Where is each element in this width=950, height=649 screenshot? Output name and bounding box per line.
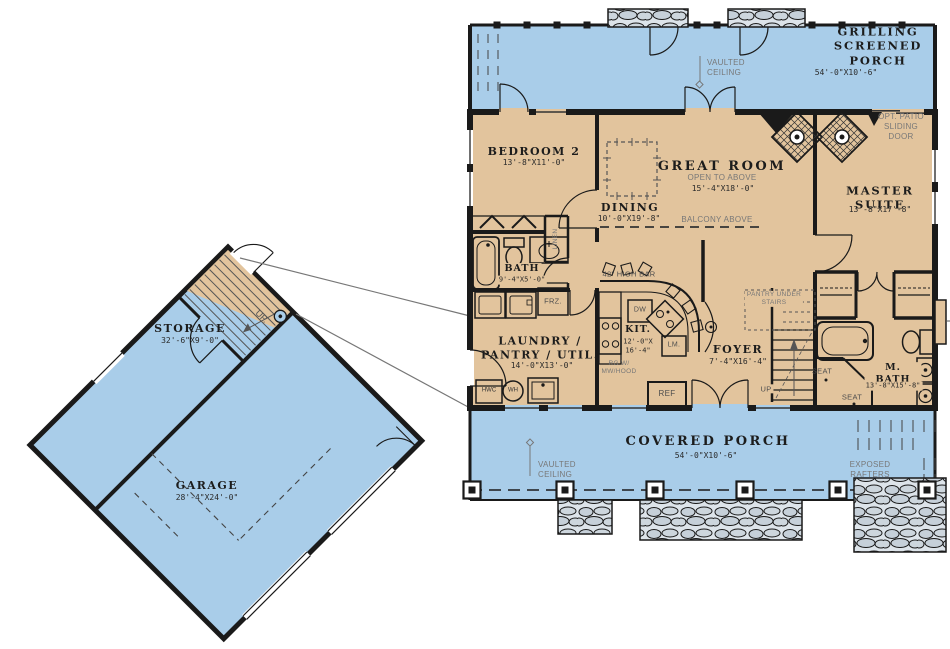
room-label-dining: DINING bbox=[601, 201, 659, 215]
dishwasher-label: DW bbox=[634, 307, 646, 316]
room-dims-dining: 10'-0"X19'-8" bbox=[598, 214, 661, 224]
room-dims-master-suite: 13'-8"X17'-8" bbox=[849, 205, 912, 215]
high-bar-note: 42" HIGH BAR bbox=[603, 269, 656, 278]
room-label-grilling-screened-porch: GRILLING SCREENED PORCH bbox=[834, 24, 922, 67]
linen-closet-label: LINEN bbox=[552, 229, 560, 250]
vaulted-ceiling-note-top: VAULTED CEILING bbox=[707, 58, 745, 78]
vaulted-ceiling-note-bottom: VAULTED CEILING bbox=[538, 460, 576, 480]
room-label-covered-porch: COVERED PORCH bbox=[626, 434, 791, 450]
room-dims-master-bath: 13'-8"X15'-8" bbox=[864, 382, 923, 391]
room-dims-bedroom2: 13'-8"X11'-0" bbox=[503, 158, 566, 168]
exposed-rafters-note: EXPOSED RAFTERS bbox=[830, 460, 910, 480]
room-label-bath: BATH bbox=[503, 263, 542, 275]
range-hood-note: RG W/ MW/HOOD bbox=[602, 360, 637, 376]
room-label-foyer: FOYER bbox=[713, 343, 763, 357]
up-label-foyer: UP bbox=[758, 384, 773, 393]
labels-layer: GRILLING SCREENED PORCH 54'-0"X10'-6" BE… bbox=[0, 0, 950, 649]
room-dims-grilling-screened-porch: 54'-0"X10'-6" bbox=[815, 68, 878, 78]
room-label-garage: GARAGE bbox=[176, 479, 238, 493]
lm-label: LM. bbox=[668, 342, 681, 351]
room-label-storage: STORAGE bbox=[154, 322, 226, 336]
seat-label-1: SEAT bbox=[812, 366, 832, 375]
refrigerator-label: REF bbox=[659, 389, 676, 399]
freezer-label: FRZ. bbox=[544, 296, 562, 305]
hwc-label: HWC bbox=[482, 387, 496, 395]
room-dims-storage: 32'-6"X9'-0" bbox=[161, 336, 219, 346]
pantry-under-stairs-note: PANTRY UNDER STAIRS bbox=[745, 291, 803, 307]
room-note-great-room: OPEN TO ABOVE bbox=[688, 173, 757, 183]
room-label-kitchen: KIT. bbox=[625, 324, 651, 336]
balcony-above-note: BALCONY ABOVE bbox=[681, 215, 752, 225]
room-dims-great-room: 15'-4"X18'-0" bbox=[692, 184, 755, 194]
room-dims-kitchen: 12'-0"X 16'-4" bbox=[623, 337, 653, 355]
room-dims-bath: 9'-4"X5'-0" bbox=[497, 276, 547, 285]
room-label-bedroom2: BEDROOM 2 bbox=[488, 145, 581, 159]
room-dims-covered-porch: 54'-0"X10'-6" bbox=[675, 451, 738, 461]
floor-plan: UP. bbox=[0, 0, 950, 649]
room-dims-foyer: 7'-4"X16'-4" bbox=[709, 357, 767, 367]
room-label-laundry: LAUNDRY / PANTRY / UTIL. bbox=[481, 334, 599, 362]
opt-patio-note: OPT. PATIO SLIDING DOOR bbox=[877, 112, 926, 142]
seat-label-2: SEAT bbox=[842, 392, 862, 401]
room-dims-garage: 28'-4"X24'-0" bbox=[176, 493, 239, 503]
water-heater-label: WH bbox=[508, 387, 518, 395]
room-dims-laundry: 14'-0"X13'-0" bbox=[511, 361, 574, 371]
